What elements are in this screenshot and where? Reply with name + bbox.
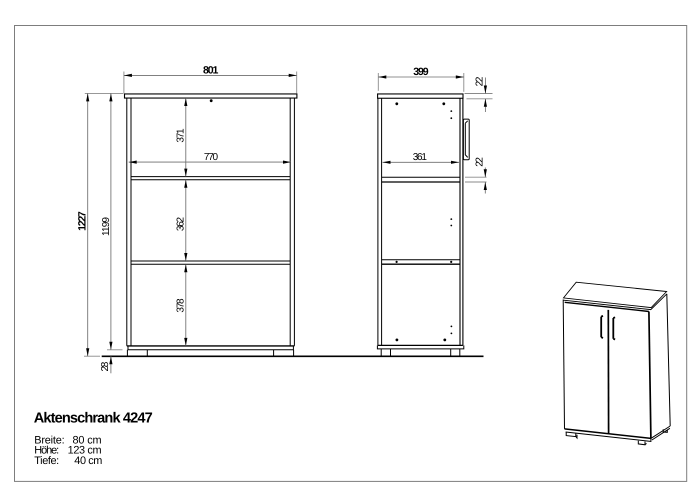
svg-text:1199: 1199 — [101, 217, 112, 236]
svg-text:40 cm: 40 cm — [74, 455, 102, 467]
svg-text:22: 22 — [475, 157, 486, 167]
svg-text:801: 801 — [203, 64, 218, 76]
svg-text:Tiefe:: Tiefe: — [34, 455, 59, 467]
svg-text:378: 378 — [176, 298, 187, 313]
svg-text:22: 22 — [475, 76, 486, 86]
svg-text:361: 361 — [413, 152, 428, 163]
svg-text:770: 770 — [204, 152, 219, 163]
svg-text:1227: 1227 — [77, 211, 89, 231]
svg-text:28: 28 — [100, 361, 111, 371]
svg-text:371: 371 — [176, 128, 187, 143]
svg-text:399: 399 — [413, 66, 428, 78]
svg-text:362: 362 — [176, 216, 187, 231]
svg-text:Aktenschrank 4247: Aktenschrank 4247 — [34, 411, 153, 427]
